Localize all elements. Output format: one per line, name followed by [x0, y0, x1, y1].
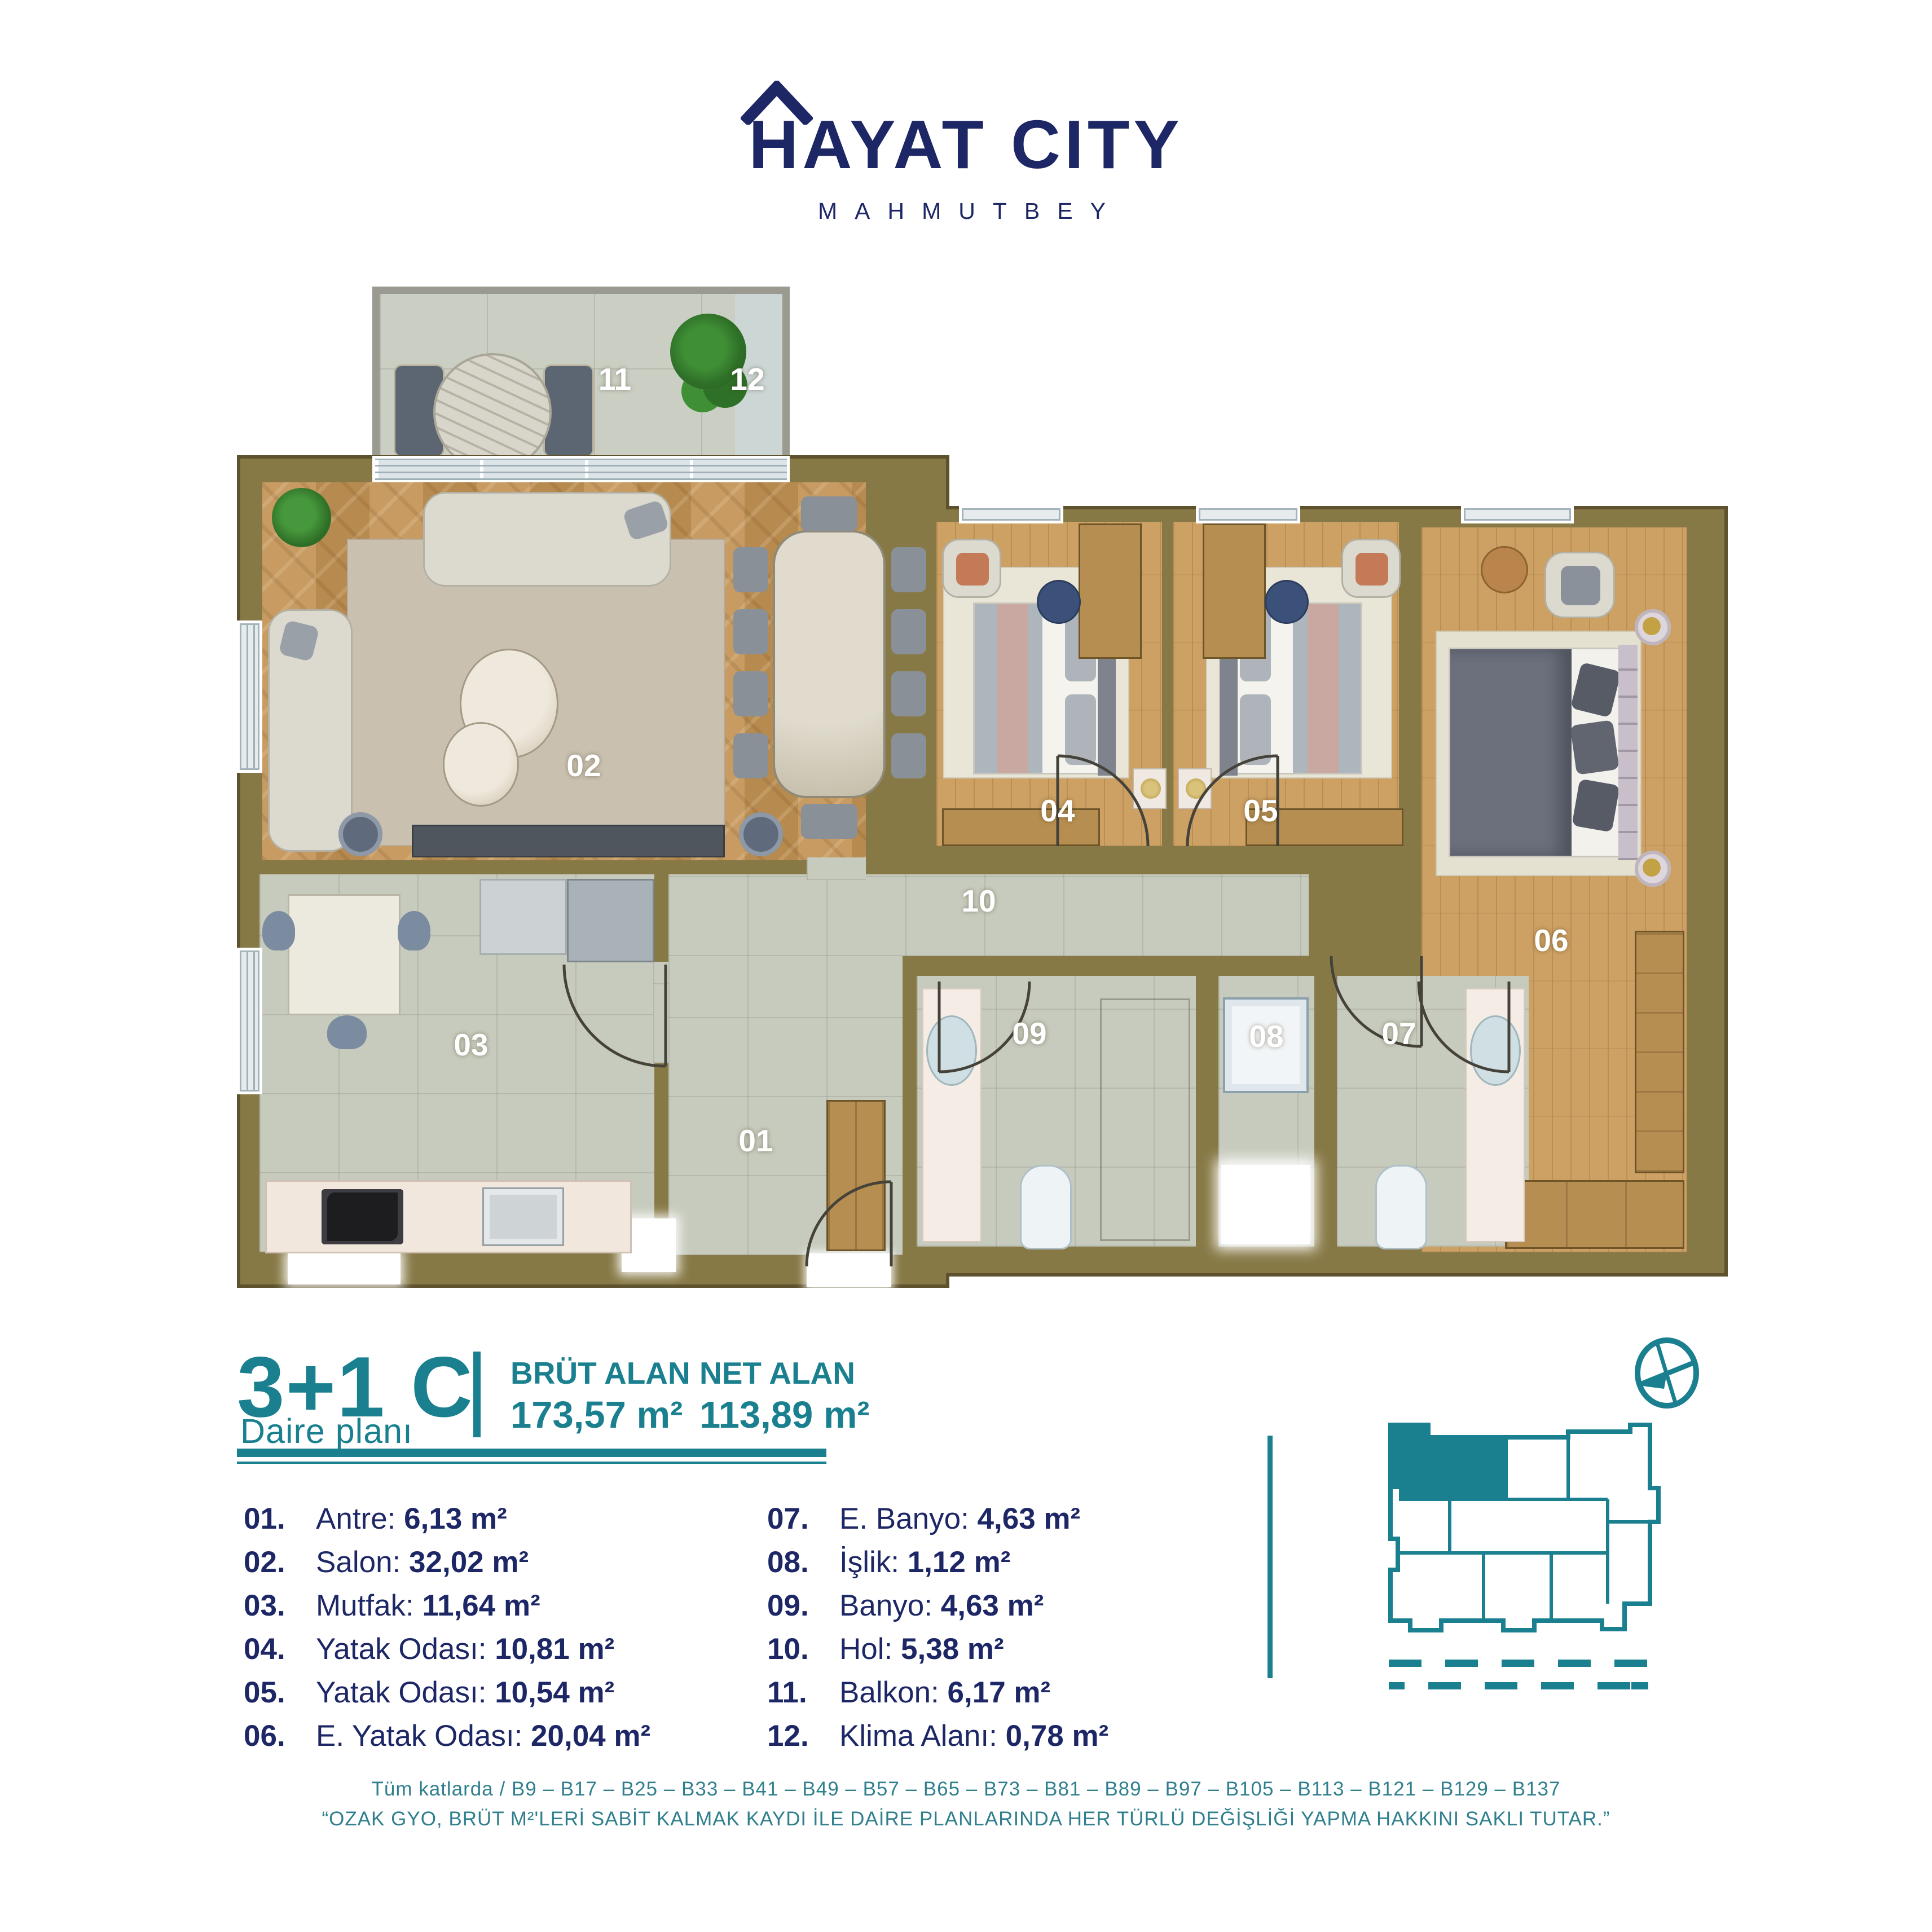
dining-chair: [801, 804, 857, 839]
room-list-item: 08.İşlik: 1,12 m²: [767, 1545, 1010, 1588]
room-label-05: 05: [1227, 793, 1295, 829]
bed05-throw: [1308, 604, 1339, 773]
keyplan-divider: [1268, 1436, 1273, 1678]
kitchen-chair: [327, 1015, 367, 1049]
dining-chair: [891, 547, 926, 592]
room-name: Hol:: [839, 1632, 892, 1666]
salon-side-table: [739, 812, 783, 856]
brut-alan-label: BRÜT ALAN: [510, 1355, 690, 1391]
room-name: Klima Alanı:: [839, 1719, 997, 1753]
room-list-item: 05.Yatak Odası: 10,54 m²: [244, 1675, 614, 1719]
room-list-item: 04.Yatak Odası: 10,81 m²: [244, 1632, 614, 1675]
salon-plant: [272, 488, 331, 547]
plan-type-subtitle: Daire planı: [240, 1411, 413, 1451]
side-table06: [1481, 546, 1528, 593]
dining-chair: [733, 547, 768, 592]
room-num: 10.: [767, 1632, 839, 1666]
logo-text: HAYAT CITY: [749, 106, 1183, 183]
kitchen-cabinet: [479, 879, 567, 955]
desk05-chair: [1265, 580, 1309, 624]
kitchen-appliance: [567, 879, 654, 962]
desk04: [1079, 523, 1142, 659]
antre-wardrobe: [826, 1100, 886, 1251]
room-name: İşlik:: [839, 1546, 899, 1579]
room-label-10: 10: [945, 883, 1013, 919]
bath09-sink: [926, 1015, 977, 1086]
bed06-pillow: [1570, 662, 1621, 718]
kitchen-chair: [398, 911, 430, 950]
compass-icon: [1632, 1336, 1702, 1410]
room-area: 5,38 m²: [901, 1632, 1004, 1666]
room-list-item: 03.Mutfak: 11,64 m²: [244, 1588, 540, 1632]
room-label-06: 06: [1517, 922, 1585, 958]
room-label-07: 07: [1365, 1015, 1433, 1051]
dresser06: [1505, 1180, 1684, 1249]
room-label-11: 11: [581, 361, 649, 397]
wardrobe06: [1635, 931, 1684, 1173]
room-list-item: 10.Hol: 5,38 m²: [767, 1632, 1004, 1675]
room-name: Antre:: [316, 1502, 395, 1535]
room-area: 11,64 m²: [423, 1589, 540, 1622]
lamp: [1643, 859, 1661, 877]
room-label-01: 01: [722, 1123, 790, 1159]
bed04-pillow: [1065, 694, 1096, 765]
room-label-02: 02: [550, 747, 618, 784]
room-label-12: 12: [714, 361, 781, 397]
net-alan-value: 113,89 m²: [699, 1393, 870, 1437]
room-name: E. Yatak Odası:: [316, 1719, 522, 1753]
armchair04-cushion: [956, 553, 989, 586]
bath07-toilet: [1375, 1165, 1427, 1249]
logo-subtitle: MAHMUTBEY: [0, 198, 1932, 225]
salon-left-window: [237, 620, 262, 773]
room-num: 08.: [767, 1545, 839, 1579]
floor-plan: 11 12 02 03 01 10 04 05 06 09 08 07: [237, 282, 1737, 1303]
room-area: 10,81 m²: [495, 1632, 614, 1666]
room-num: 01.: [244, 1502, 316, 1536]
dining-table: [773, 530, 886, 798]
utility08-window: [1221, 1165, 1310, 1244]
bed05-pillow: [1240, 694, 1271, 765]
footer-line2: “OZAK GYO, BRÜT M²'LERİ SABİT KALMAK KAY…: [0, 1808, 1932, 1830]
room-list-item: 12.Klima Alanı: 0,78 m²: [767, 1719, 1108, 1762]
stove: [322, 1189, 403, 1244]
room-list-item: 02.Salon: 32,02 m²: [244, 1545, 529, 1588]
room-name: Yatak Odası:: [316, 1676, 486, 1709]
logo-title: HAYAT CITY: [749, 110, 1183, 179]
room-area: 4,63 m²: [978, 1502, 1081, 1535]
kitchen-counter: [265, 1180, 632, 1253]
armchair04: [942, 539, 1001, 598]
dining-chair: [891, 609, 926, 654]
room-area: 20,04 m²: [531, 1719, 650, 1753]
armchair05-cushion: [1356, 553, 1388, 586]
room-area: 6,17 m²: [948, 1676, 1051, 1709]
room-label-03: 03: [437, 1027, 505, 1063]
bed06-blanket: [1450, 649, 1572, 856]
floor-lamp: [1635, 609, 1671, 645]
lamp: [1186, 778, 1206, 799]
dining-chair: [891, 733, 926, 778]
room-num: 05.: [244, 1675, 316, 1710]
room-num: 03.: [244, 1588, 316, 1623]
footer-line1: Tüm katlarda / B9 – B17 – B25 – B33 – B4…: [0, 1778, 1932, 1801]
kitchen-table: [288, 894, 401, 1015]
room-num: 07.: [767, 1502, 839, 1536]
lamp: [1141, 778, 1161, 799]
room-list-item: 01.Antre: 6,13 m²: [244, 1502, 507, 1545]
dining-chair: [801, 496, 857, 531]
room-area: 4,63 m²: [941, 1589, 1044, 1622]
kitchen-sink: [482, 1187, 564, 1246]
dining-chair: [891, 671, 926, 716]
net-alan-label: NET ALAN: [699, 1355, 855, 1391]
room-area: 1,12 m²: [908, 1546, 1011, 1579]
room-num: 09.: [767, 1588, 839, 1623]
bedroom05-window: [1196, 505, 1300, 523]
bath09-shower: [1100, 998, 1190, 1241]
page: HAYAT CITY MAHMUTBEY: [0, 0, 1932, 1932]
building-key-plan: [1365, 1403, 1670, 1646]
house-roof-icon: [741, 81, 813, 125]
room-label-04: 04: [1024, 793, 1092, 829]
bath09-toilet: [1020, 1165, 1072, 1249]
room-num: 06.: [244, 1719, 316, 1753]
lamp: [1643, 617, 1661, 635]
salon-hall-passage: [807, 857, 866, 880]
armchair05: [1341, 539, 1401, 598]
legend-rule-thick: [237, 1449, 826, 1457]
entry-door-gap: [807, 1253, 891, 1287]
room-name: Banyo:: [839, 1589, 932, 1622]
balcony-window: [372, 456, 790, 483]
coffee-table-small: [443, 722, 519, 807]
room-num: 12.: [767, 1719, 839, 1753]
room-num: 04.: [244, 1632, 316, 1666]
armchair06-cushion: [1561, 566, 1600, 605]
room-name: Mutfak:: [316, 1589, 414, 1622]
bed06-pillow: [1570, 720, 1619, 775]
nightstand05: [1178, 768, 1212, 809]
room-area: 32,02 m²: [409, 1546, 529, 1579]
dining-chair: [733, 733, 768, 778]
room-name: Balkon:: [839, 1676, 939, 1709]
room-num: 11.: [767, 1675, 839, 1710]
header-logo: HAYAT CITY MAHMUTBEY: [0, 110, 1932, 225]
armchair06: [1544, 552, 1615, 618]
bed06-pillow: [1572, 778, 1619, 832]
floor-lamp: [1635, 851, 1671, 887]
room-label-08: 08: [1233, 1018, 1300, 1054]
kitchen-door-gap: [653, 962, 670, 1063]
room-label-09: 09: [996, 1015, 1063, 1051]
room-list-item: 07.E. Banyo: 4,63 m²: [767, 1502, 1080, 1545]
room-num: 02.: [244, 1545, 316, 1579]
kitchen-chair: [262, 911, 295, 950]
room-list-item: 06.E. Yatak Odası: 20,04 m²: [244, 1719, 650, 1762]
sofa-top: [423, 492, 671, 587]
room-area: 0,78 m²: [1006, 1719, 1109, 1753]
bath07-sink: [1470, 1015, 1521, 1086]
room-name: E. Banyo:: [839, 1502, 969, 1535]
nightstand04: [1133, 768, 1167, 809]
bedroom04-window: [959, 505, 1063, 523]
tv-unit: [412, 825, 725, 857]
dining-chair: [733, 609, 768, 654]
bed04-throw: [997, 604, 1028, 773]
keyplan-road-dashes: [1389, 1660, 1648, 1667]
brut-alan-value: 173,57 m²: [510, 1393, 683, 1437]
bed06: [1449, 648, 1635, 857]
kitchen-bottom-window: [288, 1253, 401, 1284]
salon-side-table: [338, 812, 382, 856]
room-list-item: 11.Balkon: 6,17 m²: [767, 1675, 1050, 1719]
bedroom06-window: [1461, 505, 1574, 523]
room-list-item: 09.Banyo: 4,63 m²: [767, 1588, 1044, 1632]
desk05: [1203, 523, 1266, 659]
keyplan-road-dashes: [1389, 1682, 1648, 1689]
room-name: Salon:: [316, 1546, 401, 1579]
dining-chair: [733, 671, 768, 716]
legend-rule-thin: [237, 1462, 826, 1464]
room-name: Yatak Odası:: [316, 1632, 486, 1666]
desk04-chair: [1037, 580, 1081, 624]
kitchen-left-window: [237, 948, 262, 1094]
legend-divider: [473, 1352, 481, 1437]
room-area: 10,54 m²: [495, 1676, 614, 1709]
bed06-headboard: [1618, 645, 1638, 860]
room-area: 6,13 m²: [404, 1502, 507, 1535]
